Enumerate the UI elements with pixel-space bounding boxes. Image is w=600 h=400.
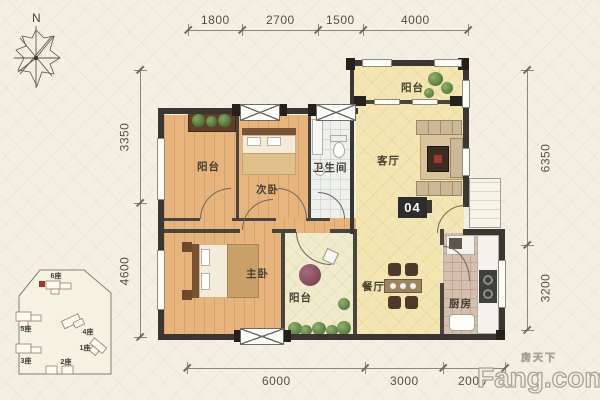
bay-window <box>316 104 356 121</box>
dining-chair <box>405 263 418 276</box>
dining-chair <box>405 296 418 309</box>
room-label-kitchen: 厨房 <box>449 296 472 311</box>
dim-line-right <box>527 70 528 330</box>
room-label-balcony-top-left: 阳台 <box>197 159 220 174</box>
window <box>374 99 400 105</box>
window <box>434 59 462 67</box>
dim-top-2700: 2700 <box>266 13 295 27</box>
dim-bottom-6000: 6000 <box>262 374 291 388</box>
dim-left-3350: 3350 <box>117 123 131 152</box>
fang-watermark-brand: Fang.com <box>477 364 600 392</box>
dim-top-1800: 1800 <box>201 13 230 27</box>
wall <box>164 229 240 233</box>
site-building-label: 5座 <box>21 324 32 333</box>
plate <box>400 283 406 289</box>
room-label-balcony-top-right: 阳台 <box>401 80 424 95</box>
dining-chair <box>388 296 401 309</box>
plant-icon <box>424 88 434 98</box>
toilet <box>333 142 345 158</box>
balcony-table <box>299 264 321 286</box>
north-label: N <box>32 11 41 25</box>
wall <box>440 283 444 340</box>
room-label-balcony-bottom: 阳台 <box>289 290 312 305</box>
room-label-living: 客厅 <box>377 153 400 168</box>
window <box>157 250 165 310</box>
room-label-dining: 餐厅 <box>362 279 385 294</box>
site-building-label: 3座 <box>21 356 32 365</box>
window <box>462 80 470 108</box>
pillow <box>201 249 210 266</box>
wall-post <box>346 58 355 70</box>
site-plan: 6座 5座 4座 1座 3座 2座 <box>6 264 136 380</box>
fang-watermark: 房天下 Fang.com <box>477 354 600 392</box>
plant-icon <box>338 298 350 310</box>
plant-icon <box>428 72 443 86</box>
wall <box>164 218 200 221</box>
dining-chair <box>388 263 401 276</box>
wall-post <box>283 330 291 342</box>
window <box>462 148 470 176</box>
north-compass-icon: N <box>8 6 64 90</box>
bed-headboard <box>192 244 199 298</box>
burner <box>483 289 493 299</box>
plate <box>390 283 396 289</box>
nightstand <box>182 242 192 252</box>
kitchen-sink <box>449 314 475 331</box>
plant-icon <box>337 321 351 335</box>
bay-window <box>240 104 280 121</box>
site-building-label: 6座 <box>51 271 62 280</box>
unit-number-badge: 04 <box>398 197 427 218</box>
stairwell <box>469 178 501 228</box>
window <box>412 99 438 105</box>
current-building-marker <box>39 281 45 287</box>
plant-icon <box>441 82 453 94</box>
dim-line-bottom <box>187 368 505 369</box>
plant-icon <box>206 116 217 127</box>
sofa <box>416 120 462 135</box>
window <box>498 260 506 308</box>
window <box>362 59 392 67</box>
dim-right-3200: 3200 <box>538 274 552 303</box>
pillow <box>247 137 261 146</box>
room-label-bedroom2: 次卧 <box>256 182 279 197</box>
dim-bottom-3000: 3000 <box>390 374 419 388</box>
nightstand <box>182 290 192 300</box>
dim-right-6350: 6350 <box>538 144 552 173</box>
wall <box>354 100 464 104</box>
burner <box>483 275 493 285</box>
room-label-master-bedroom: 主卧 <box>246 266 269 281</box>
bed-headboard <box>242 128 296 135</box>
wall <box>236 114 239 220</box>
shower <box>312 119 323 155</box>
site-building-label: 4座 <box>83 327 94 336</box>
wall <box>308 114 311 220</box>
window <box>157 138 165 200</box>
bay-window <box>240 328 284 345</box>
wall-post <box>496 330 505 340</box>
floorplan-image: N 1800 2700 1500 4000 3350 4600 <box>0 0 600 400</box>
toilet-tank <box>330 135 347 142</box>
blanket <box>242 153 296 175</box>
plant-icon <box>192 114 205 127</box>
sofa <box>416 181 462 196</box>
pillow <box>267 137 281 146</box>
wall <box>353 229 357 340</box>
site-building-label: 2座 <box>61 357 72 366</box>
pillow <box>201 273 210 290</box>
dim-top-4000: 4000 <box>401 13 430 27</box>
wall <box>285 229 296 233</box>
table-decor <box>434 155 442 163</box>
dim-top-1500: 1500 <box>326 13 355 27</box>
wall <box>350 62 354 234</box>
dim-line-top <box>188 30 468 31</box>
plate <box>410 283 416 289</box>
wall <box>281 229 285 340</box>
site-building-label: 1座 <box>80 343 91 352</box>
wall-post <box>279 104 287 116</box>
room-label-bathroom: 卫生间 <box>313 160 348 175</box>
plant-icon <box>218 114 231 127</box>
wall <box>158 334 505 340</box>
